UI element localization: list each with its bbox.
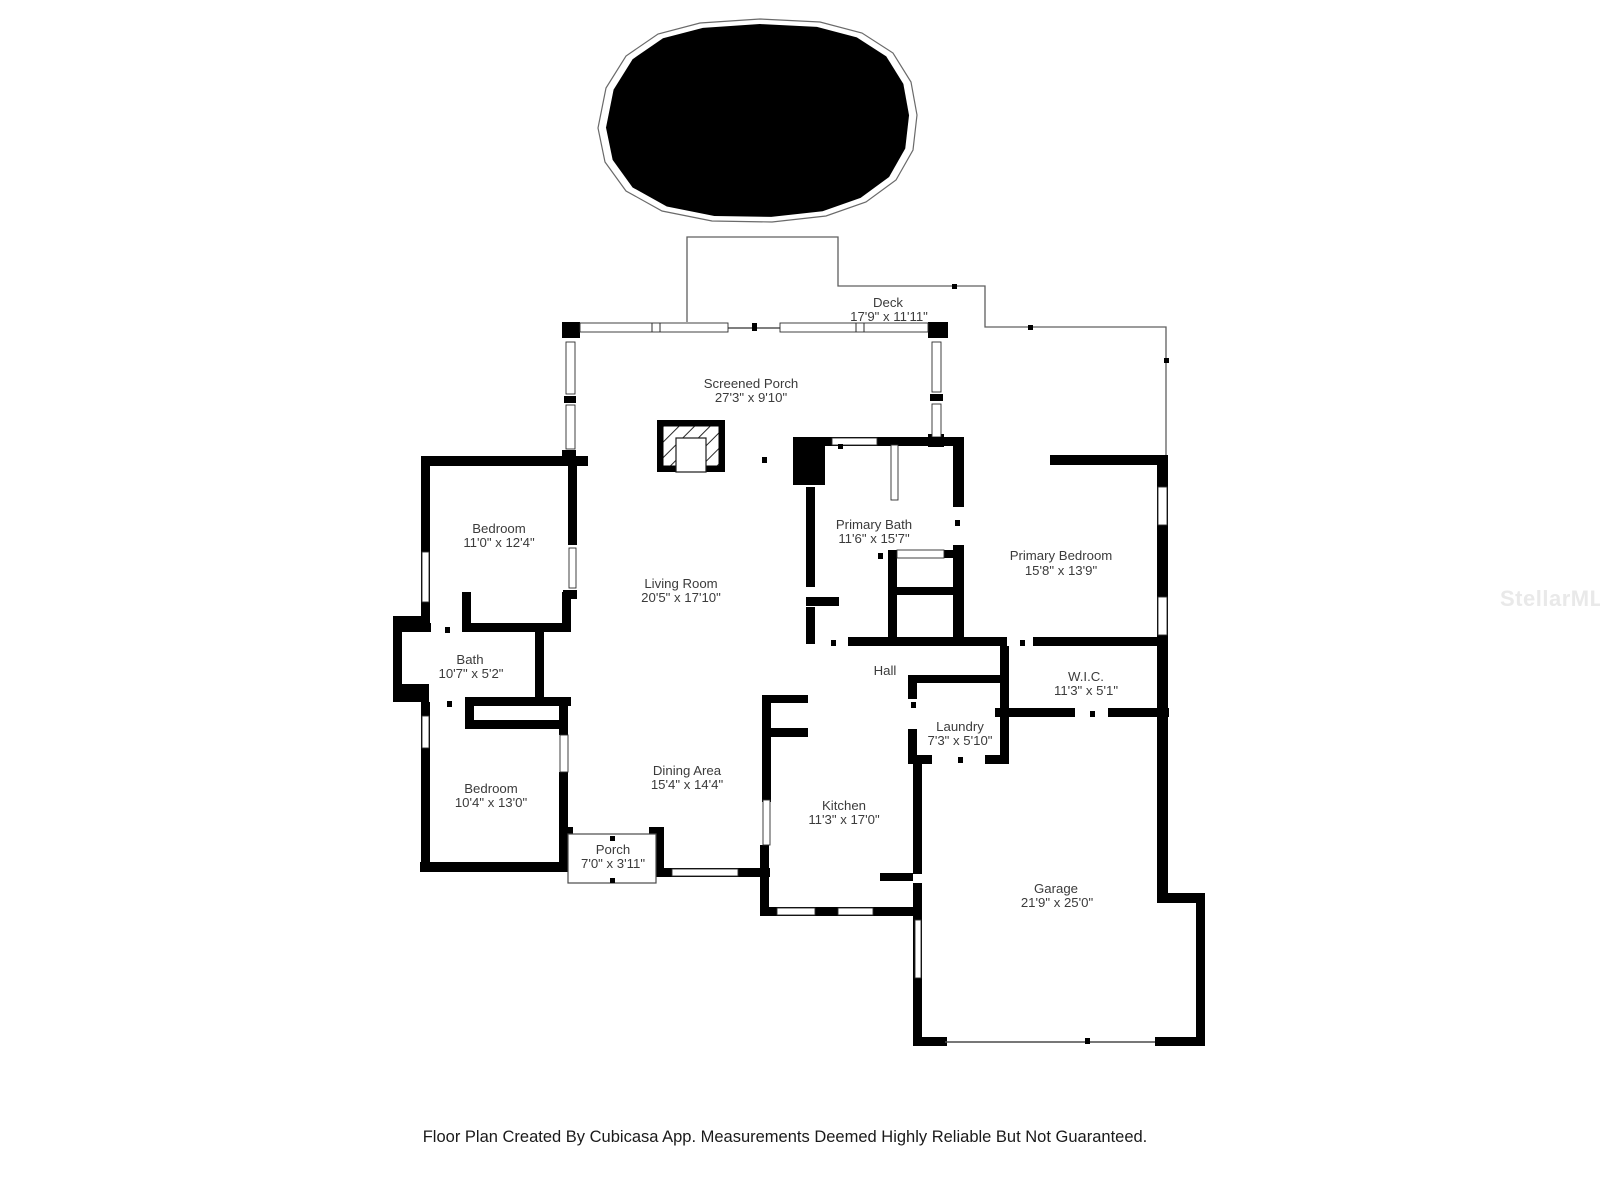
room-dims-primary-bath: 11'6" x 15'7" bbox=[838, 531, 910, 546]
room-labels: Deck 17'9" x 11'11" Screened Porch 27'3"… bbox=[439, 295, 1119, 910]
room-label-garage: Garage bbox=[1034, 881, 1078, 896]
room-label-laundry: Laundry bbox=[936, 719, 984, 734]
room-dims-garage: 21'9" x 25'0" bbox=[1021, 895, 1094, 910]
room-label-dining-area: Dining Area bbox=[653, 763, 722, 778]
pool-water bbox=[606, 24, 909, 217]
room-label-living-room: Living Room bbox=[644, 576, 717, 591]
room-label-wic: W.I.C. bbox=[1068, 669, 1104, 684]
room-dims-wic: 11'3" x 5'1" bbox=[1054, 683, 1118, 698]
fireplace bbox=[657, 420, 725, 472]
room-label-bedroom-top: Bedroom bbox=[472, 521, 526, 536]
room-dims-bedroom-top: 11'0" x 12'4" bbox=[463, 535, 535, 550]
room-dims-primary-bedroom: 15'8" x 13'9" bbox=[1025, 563, 1098, 578]
room-label-hall: Hall bbox=[874, 663, 897, 678]
footer-disclaimer: Floor Plan Created By Cubicasa App. Meas… bbox=[423, 1128, 1148, 1146]
stellar-mls-watermark: StellarMLS bbox=[1500, 586, 1600, 611]
door-markers bbox=[425, 284, 1169, 1044]
floor-plan-page: Deck 17'9" x 11'11" Screened Porch 27'3"… bbox=[0, 0, 1600, 1200]
room-dims-bath: 10'7" x 5'2" bbox=[439, 666, 504, 681]
room-dims-bedroom-bottom: 10'4" x 13'0" bbox=[455, 795, 528, 810]
room-dims-porch: 7'0" x 3'11" bbox=[581, 856, 645, 871]
room-dims-laundry: 7'3" x 5'10" bbox=[928, 733, 993, 748]
room-dims-screened-porch: 27'3" x 9'10" bbox=[715, 390, 788, 405]
room-dims-deck: 17'9" x 11'11" bbox=[850, 309, 928, 324]
room-dims-kitchen: 11'3" x 17'0" bbox=[808, 812, 880, 827]
room-label-bath: Bath bbox=[456, 652, 483, 667]
room-label-primary-bedroom: Primary Bedroom bbox=[1010, 548, 1113, 563]
room-label-bedroom-bottom: Bedroom bbox=[464, 781, 518, 796]
room-dims-dining-area: 15'4" x 14'4" bbox=[651, 777, 724, 792]
floor-plan-canvas: Deck 17'9" x 11'11" Screened Porch 27'3"… bbox=[0, 0, 1600, 1200]
room-label-kitchen: Kitchen bbox=[822, 798, 866, 813]
room-dims-living-room: 20'5" x 17'10" bbox=[641, 590, 721, 605]
room-label-primary-bath: Primary Bath bbox=[836, 517, 912, 532]
pool-shape bbox=[598, 19, 917, 222]
room-label-porch: Porch bbox=[596, 842, 630, 857]
room-label-screened-porch: Screened Porch bbox=[704, 376, 799, 391]
deck-outline bbox=[687, 237, 1166, 459]
room-label-deck: Deck bbox=[873, 295, 903, 310]
